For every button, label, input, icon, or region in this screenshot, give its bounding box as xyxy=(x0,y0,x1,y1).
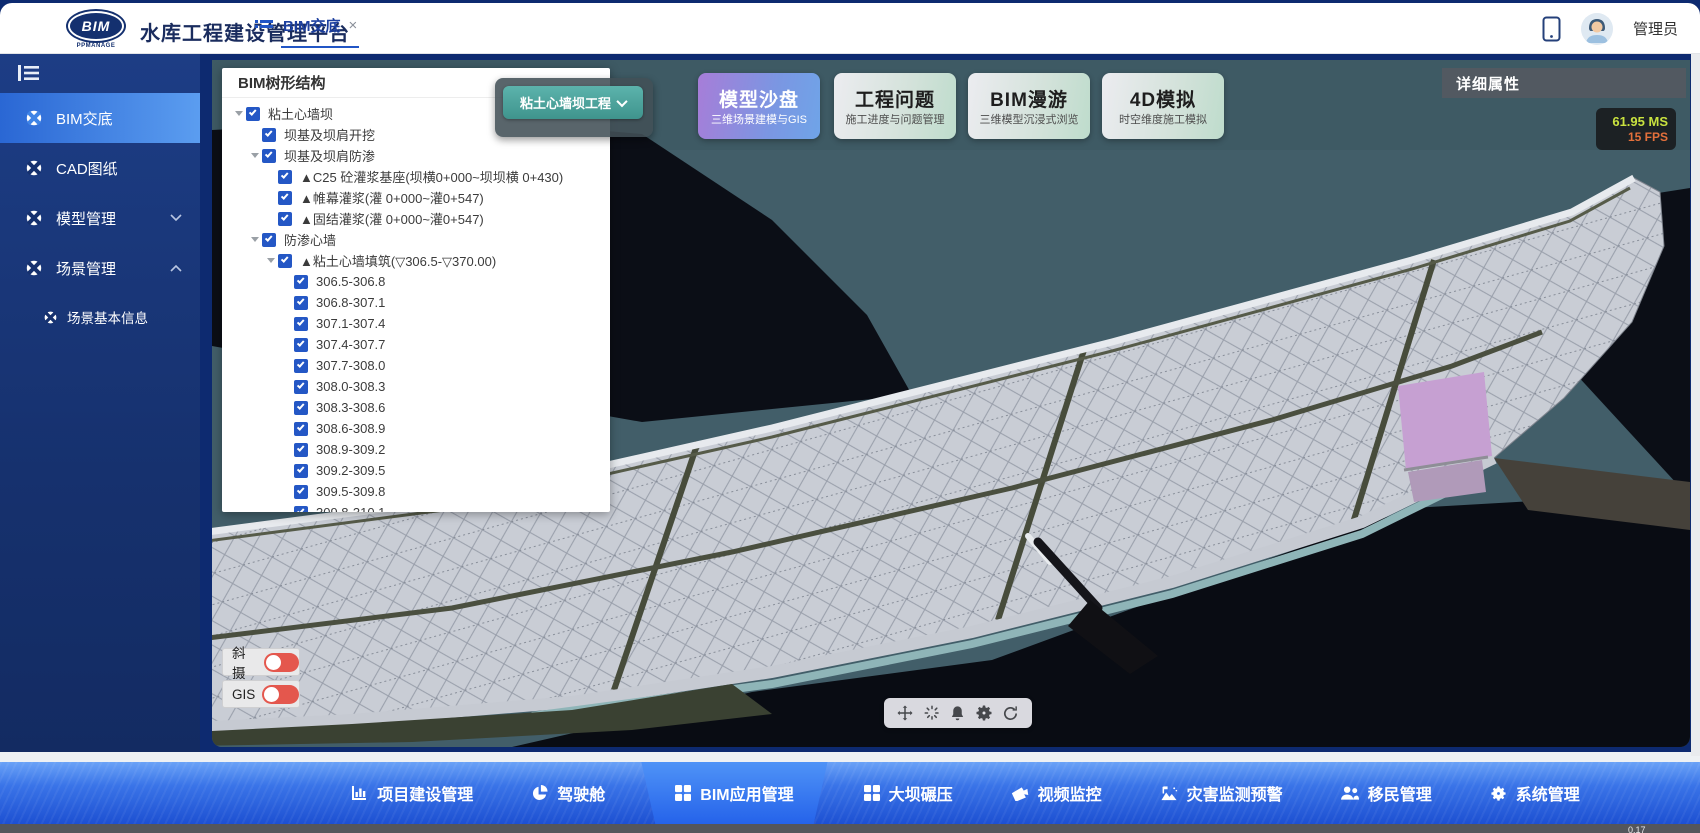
card-title: 模型沙盘 xyxy=(719,85,799,112)
tree-row-label: 308.9-309.2 xyxy=(316,442,385,457)
corner-stat-value: 0.17 xyxy=(1628,825,1646,833)
card-title: 4D模拟 xyxy=(1130,85,1196,112)
expander-caret-icon xyxy=(280,275,294,289)
tree-row-label: 308.0-308.3 xyxy=(316,379,385,394)
expander-caret-icon xyxy=(248,128,262,142)
chevron-down-icon xyxy=(616,95,627,106)
tree-row-label: 309.8-310.1 xyxy=(316,505,385,512)
detail-properties-title: 详细属性 xyxy=(1456,73,1520,94)
sidebar-item-bim-briefing[interactable]: BIM交底 xyxy=(0,93,200,143)
sidebar-item-label: 模型管理 xyxy=(56,208,116,229)
card-engineering-issues[interactable]: 工程问题 施工进度与问题管理 xyxy=(834,73,956,139)
checkbox[interactable] xyxy=(294,485,308,499)
toggle-label: 斜摄 xyxy=(232,642,257,682)
expander-caret-icon xyxy=(280,422,294,436)
chevron-up-icon xyxy=(170,264,182,272)
checkbox[interactable] xyxy=(294,401,308,415)
toggle-label: GIS xyxy=(232,687,255,702)
fps-value: 15 FPS xyxy=(1628,130,1668,144)
username[interactable]: 管理员 xyxy=(1633,18,1678,39)
sparkle-icon[interactable] xyxy=(922,703,942,723)
tree-row[interactable]: 坝基及坝肩防渗 xyxy=(222,145,610,166)
checkbox[interactable] xyxy=(294,422,308,436)
expander-caret-icon xyxy=(280,359,294,373)
compass-icon xyxy=(26,160,42,176)
checkbox[interactable] xyxy=(278,191,292,205)
3d-viewport[interactable]: 模型沙盘 三维场景建模与GIS 工程问题 施工进度与问题管理 BIM漫游 三维模… xyxy=(212,60,1690,747)
expander-caret-icon xyxy=(264,170,278,184)
viewport-toolbar xyxy=(884,698,1032,728)
expander-caret-icon[interactable] xyxy=(248,149,262,163)
expander-caret-icon[interactable] xyxy=(264,254,278,268)
tree-row[interactable]: ▲固结灌浆(灌 0+000~灌0+547) xyxy=(222,208,610,229)
gis-toggle[interactable] xyxy=(262,685,299,704)
checkbox[interactable] xyxy=(294,380,308,394)
nav-video-surveillance[interactable]: 视频监控 xyxy=(989,762,1124,824)
nav-project-construction[interactable]: 项目建设管理 xyxy=(328,762,495,824)
tree-row[interactable]: 307.1-307.4 xyxy=(222,313,610,334)
disaster-mountain-icon xyxy=(1160,785,1178,802)
tree-row-label: ▲固结灌浆(灌 0+000~灌0+547) xyxy=(300,209,484,228)
gear-icon[interactable] xyxy=(974,703,994,723)
checkbox[interactable] xyxy=(294,443,308,457)
expander-caret-icon xyxy=(280,464,294,478)
checkbox[interactable] xyxy=(294,275,308,289)
compass-icon xyxy=(44,311,57,324)
checkbox[interactable] xyxy=(294,296,308,310)
logo-subtext: PPMANAGE xyxy=(64,43,128,49)
card-subtitle: 时空维度施工模拟 xyxy=(1119,114,1207,128)
expander-caret-icon xyxy=(264,212,278,226)
tree-row[interactable]: ▲C25 砼灌浆基座(坝横0+000~坝坝横 0+430) xyxy=(222,166,610,187)
dashboard-pie-icon xyxy=(531,785,548,802)
tree-row-label: 309.2-309.5 xyxy=(316,463,385,478)
card-title: 工程问题 xyxy=(855,85,935,112)
tree-row[interactable]: ▲粘土心墙填筑(▽306.5-▽370.00) xyxy=(222,250,610,271)
tree-row[interactable]: 308.0-308.3 xyxy=(222,376,610,397)
bottom-divider xyxy=(0,752,1700,762)
sidebar-item-label: BIM交底 xyxy=(56,108,113,129)
users-icon xyxy=(1341,785,1359,801)
nav-cockpit[interactable]: 驾驶舱 xyxy=(509,762,627,824)
card-model-sandbox[interactable]: 模型沙盘 三维场景建模与GIS xyxy=(698,73,820,139)
close-icon[interactable]: × xyxy=(349,18,358,33)
tree-row[interactable]: 309.8-310.1 xyxy=(222,502,610,512)
nav-label: 驾驶舱 xyxy=(557,781,605,805)
tree-row-label: 306.5-306.8 xyxy=(316,274,385,289)
system-gear-icon xyxy=(1490,785,1507,802)
nav-dam-rolling[interactable]: 大坝碾压 xyxy=(842,762,975,824)
tree-row-label: 307.7-308.0 xyxy=(316,358,385,373)
sidebar: BIM交底 CAD图纸 模型管理 场景管理 场景基本信息 xyxy=(0,54,200,752)
compass-icon xyxy=(26,210,42,226)
checkbox[interactable] xyxy=(262,233,276,247)
expander-caret-icon xyxy=(280,485,294,499)
checkbox[interactable] xyxy=(294,506,308,513)
chevron-down-icon xyxy=(170,214,182,222)
tab-list-icon[interactable] xyxy=(255,19,273,33)
tree-row[interactable]: 309.5-309.8 xyxy=(222,481,610,502)
sidebar-item-model-management[interactable]: 模型管理 xyxy=(0,193,200,243)
expander-caret-icon xyxy=(280,338,294,352)
tab-label: BIM交底 xyxy=(283,15,341,36)
tree-row-label: ▲C25 砼灌浆基座(坝横0+000~坝坝横 0+430) xyxy=(300,167,563,186)
tree-row-label: 坝基及坝肩开挖 xyxy=(284,125,375,144)
tree-row-label: 粘土心墙坝 xyxy=(268,104,333,123)
project-chart-icon xyxy=(350,784,368,802)
nav-system-management[interactable]: 系统管理 xyxy=(1468,762,1602,824)
tree-row[interactable]: 306.5-306.8 xyxy=(222,271,610,292)
compass-icon xyxy=(26,110,42,126)
tree-row-label: 坝基及坝肩防渗 xyxy=(284,146,375,165)
expander-caret-icon xyxy=(280,296,294,310)
nav-label: 大坝碾压 xyxy=(889,781,953,805)
tree-row[interactable]: 308.6-308.9 xyxy=(222,418,610,439)
tree-row[interactable]: 307.7-308.0 xyxy=(222,355,610,376)
app-header: BIM PPMANAGE 水库工程建设管理平台 BIM交底 × 管理员 xyxy=(0,3,1700,54)
bim-grid-icon xyxy=(675,785,691,801)
tab-bim-briefing[interactable]: BIM交底 × xyxy=(281,15,359,48)
card-subtitle: 三维场景建模与GIS xyxy=(711,114,807,128)
tree-row-label: 307.1-307.4 xyxy=(316,316,385,331)
tree-row[interactable]: 防渗心墙 xyxy=(222,229,610,250)
sidebar-item-label: 场景管理 xyxy=(56,258,116,279)
checkbox[interactable] xyxy=(294,317,308,331)
card-title: BIM漫游 xyxy=(990,85,1068,112)
checkbox[interactable] xyxy=(278,170,292,184)
nav-label: 移民管理 xyxy=(1368,781,1432,805)
tree-row-label: 308.6-308.9 xyxy=(316,421,385,436)
sidebar-item-scene-management[interactable]: 场景管理 xyxy=(0,243,200,293)
tree-row[interactable]: 307.4-307.7 xyxy=(222,334,610,355)
tree-row[interactable]: 308.9-309.2 xyxy=(222,439,610,460)
tree-row-label: 防渗心墙 xyxy=(284,230,336,249)
tree-row[interactable]: ▲帷幕灌浆(灌 0+000~灌0+547) xyxy=(222,187,610,208)
checkbox[interactable] xyxy=(262,128,276,142)
checkbox[interactable] xyxy=(294,464,308,478)
bell-icon[interactable] xyxy=(948,703,968,723)
checkbox[interactable] xyxy=(294,359,308,373)
sidebar-item-cad-drawings[interactable]: CAD图纸 xyxy=(0,143,200,193)
nav-label: 系统管理 xyxy=(1516,781,1580,805)
nav-label: 项目建设管理 xyxy=(377,781,473,805)
expander-caret-icon[interactable] xyxy=(232,107,246,121)
tree-row[interactable]: 309.2-309.5 xyxy=(222,460,610,481)
compass-icon xyxy=(26,260,42,276)
mobile-icon[interactable] xyxy=(1542,16,1561,42)
pan-move-icon[interactable] xyxy=(895,703,915,723)
logo-text: BIM xyxy=(82,18,111,34)
nav-label: BIM应用管理 xyxy=(700,781,793,805)
tree-row[interactable]: 308.3-308.6 xyxy=(222,397,610,418)
tree-row-label: ▲帷幕灌浆(灌 0+000~灌0+547) xyxy=(300,188,484,207)
expander-caret-icon xyxy=(264,191,278,205)
collapse-menu-icon[interactable] xyxy=(18,64,40,82)
tree-row[interactable]: 306.8-307.1 xyxy=(222,292,610,313)
nav-resettlement[interactable]: 移民管理 xyxy=(1319,762,1454,824)
expander-caret-icon xyxy=(280,380,294,394)
project-selector-button[interactable]: 粘土心墙坝工程 xyxy=(503,86,643,119)
tree-row-label: 306.8-307.1 xyxy=(316,295,385,310)
avatar[interactable] xyxy=(1581,13,1613,45)
bottom-status-strip: 0.17 xyxy=(0,824,1700,833)
expander-caret-icon[interactable] xyxy=(248,233,262,247)
detail-properties-header[interactable]: 详细属性 xyxy=(1442,68,1686,98)
expander-caret-icon xyxy=(280,401,294,415)
nav-bim-application[interactable]: BIM应用管理 xyxy=(641,762,827,824)
performance-stats: 61.95 MS 15 FPS xyxy=(1596,108,1676,150)
scrollbar-track[interactable] xyxy=(1691,54,1700,756)
card-subtitle: 施工进度与问题管理 xyxy=(846,114,945,128)
tab-bar: BIM交底 × xyxy=(255,15,359,53)
checkbox[interactable] xyxy=(294,338,308,352)
tree-list: 粘土心墙坝 坝基及坝肩开挖 坝基及坝肩防渗 ▲C25 砼灌浆基座(坝横0+000… xyxy=(222,98,610,512)
tree-row-label: 309.5-309.8 xyxy=(316,484,385,499)
checkbox[interactable] xyxy=(278,212,292,226)
checkbox[interactable] xyxy=(246,107,260,121)
refresh-icon[interactable] xyxy=(1001,703,1021,723)
dam-grid-icon xyxy=(864,785,880,801)
expander-caret-icon xyxy=(280,443,294,457)
nav-label: 灾害监测预警 xyxy=(1187,781,1283,805)
sidebar-item-scene-basic-info[interactable]: 场景基本信息 xyxy=(0,297,200,337)
checkbox[interactable] xyxy=(262,149,276,163)
expander-caret-icon xyxy=(280,506,294,513)
card-bim-roaming[interactable]: BIM漫游 三维模型沉浸式浏览 xyxy=(968,73,1090,139)
tree-row-label: 307.4-307.7 xyxy=(316,337,385,352)
checkbox[interactable] xyxy=(278,254,292,268)
gis-toggle-chip: GIS xyxy=(222,680,300,708)
bim-logo: BIM xyxy=(68,11,124,41)
tree-row-label: 308.3-308.6 xyxy=(316,400,385,415)
nav-disaster-monitoring[interactable]: 灾害监测预警 xyxy=(1138,762,1305,824)
card-subtitle: 三维模型沉浸式浏览 xyxy=(980,114,1079,128)
project-selector-label: 粘土心墙坝工程 xyxy=(520,93,611,112)
sidebar-item-label: 场景基本信息 xyxy=(67,307,148,327)
tree-row-label: ▲粘土心墙填筑(▽306.5-▽370.00) xyxy=(300,251,496,270)
video-camera-icon xyxy=(1011,785,1029,801)
oblique-photo-toggle[interactable] xyxy=(264,653,299,672)
nav-label: 视频监控 xyxy=(1038,781,1102,805)
oblique-photo-toggle-chip: 斜摄 xyxy=(222,648,300,676)
header-right: 管理员 xyxy=(1542,3,1678,54)
expander-caret-icon xyxy=(280,317,294,331)
frame-time-value: 61.95 MS xyxy=(1612,114,1668,129)
sidebar-item-label: CAD图纸 xyxy=(56,158,118,179)
card-4d-simulation[interactable]: 4D模拟 时空维度施工模拟 xyxy=(1102,73,1224,139)
bottom-nav: 项目建设管理 驾驶舱 BIM应用管理 大坝碾压 视频 xyxy=(0,762,1700,824)
